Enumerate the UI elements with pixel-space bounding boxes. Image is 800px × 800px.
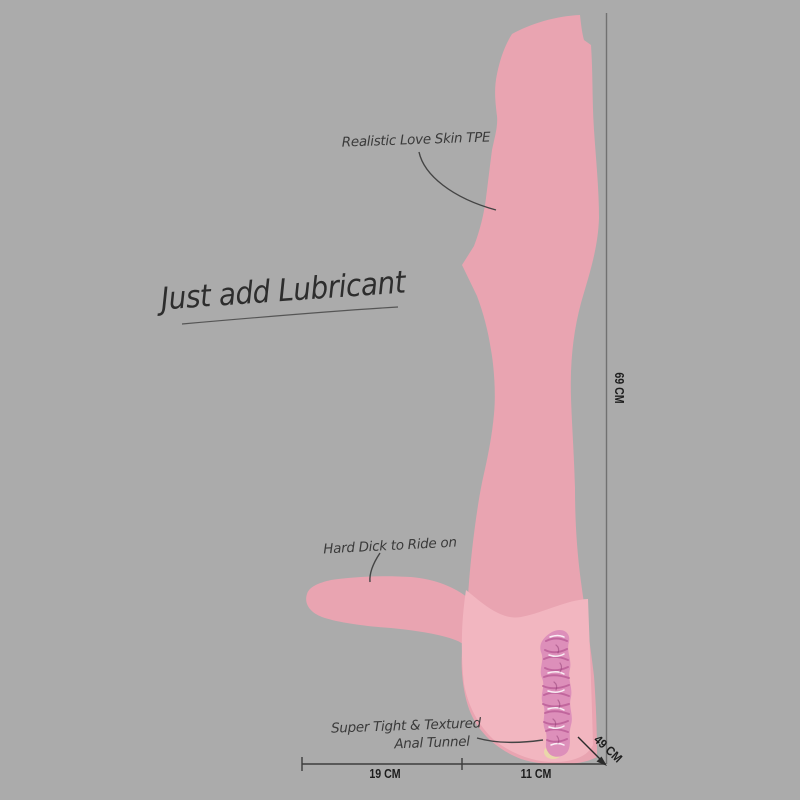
height-dimension-label: 69 CM	[612, 372, 626, 403]
product-diagram: Realistic Love Skin TPE Just add Lubrica…	[0, 0, 800, 800]
interior-soft-region	[462, 590, 593, 762]
tunnel-feature-label-line2: Anal Tunnel	[394, 734, 470, 753]
leader-line-material	[419, 152, 496, 210]
bottom-left-width-label: 19 CM	[369, 767, 400, 781]
bottom-right-width-label: 11 CM	[521, 767, 552, 781]
diagram-canvas	[0, 0, 800, 800]
